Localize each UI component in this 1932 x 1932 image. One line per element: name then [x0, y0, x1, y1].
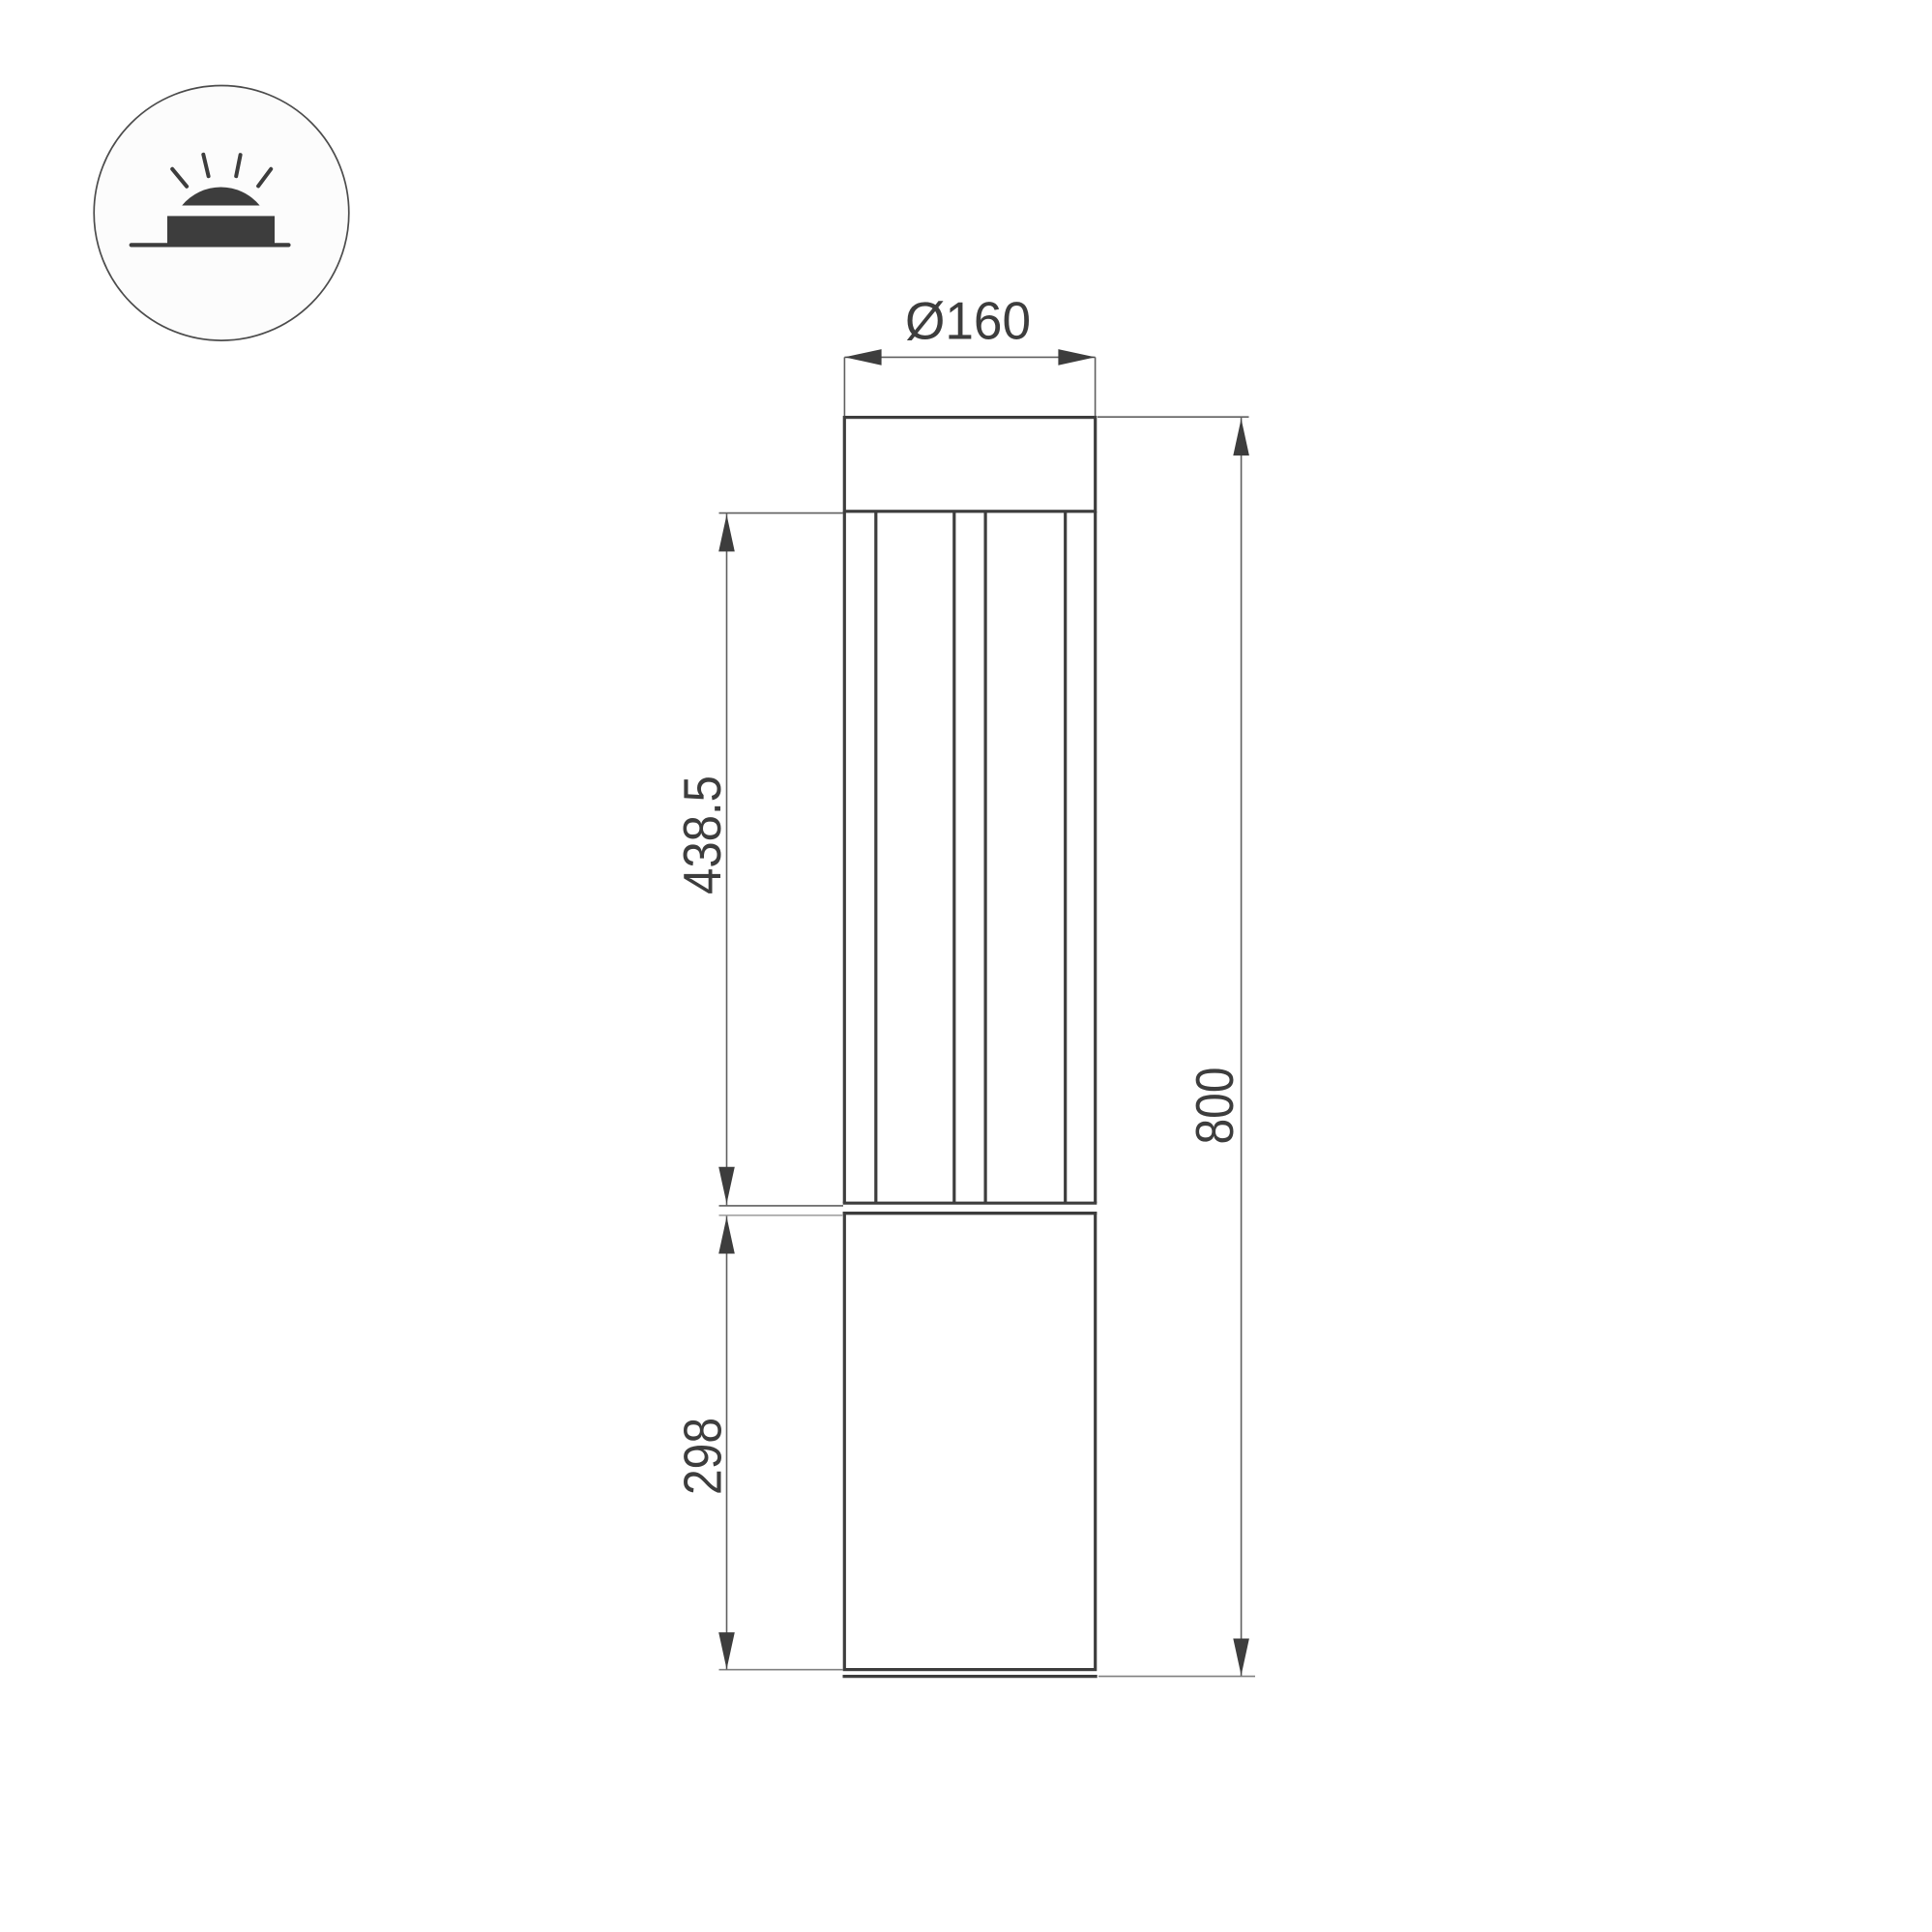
- svg-text:800: 800: [1185, 1068, 1244, 1145]
- svg-text:438.5: 438.5: [672, 776, 732, 894]
- svg-text:298: 298: [673, 1418, 733, 1495]
- svg-text:Ø160: Ø160: [905, 291, 1031, 351]
